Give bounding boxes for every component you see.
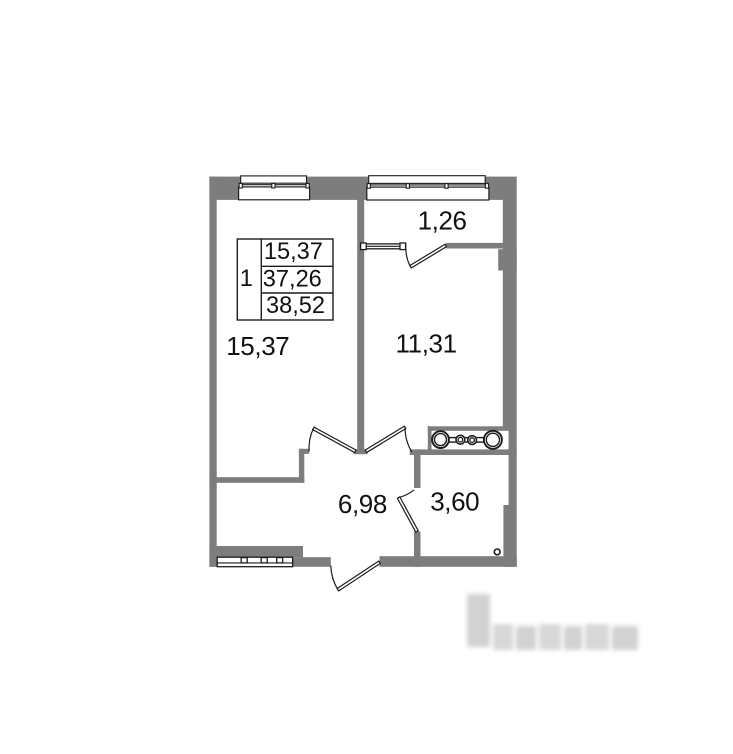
svg-text:38,52: 38,52 bbox=[266, 293, 325, 319]
svg-text:15,37: 15,37 bbox=[264, 239, 323, 265]
svg-text:15,37: 15,37 bbox=[226, 331, 289, 361]
svg-text:37,26: 37,26 bbox=[263, 267, 322, 293]
svg-text:11,31: 11,31 bbox=[396, 328, 457, 358]
svg-text:1,26: 1,26 bbox=[418, 206, 467, 236]
svg-text:3,60: 3,60 bbox=[430, 486, 479, 516]
svg-text:1: 1 bbox=[240, 266, 253, 292]
svg-text:6,98: 6,98 bbox=[338, 489, 387, 519]
